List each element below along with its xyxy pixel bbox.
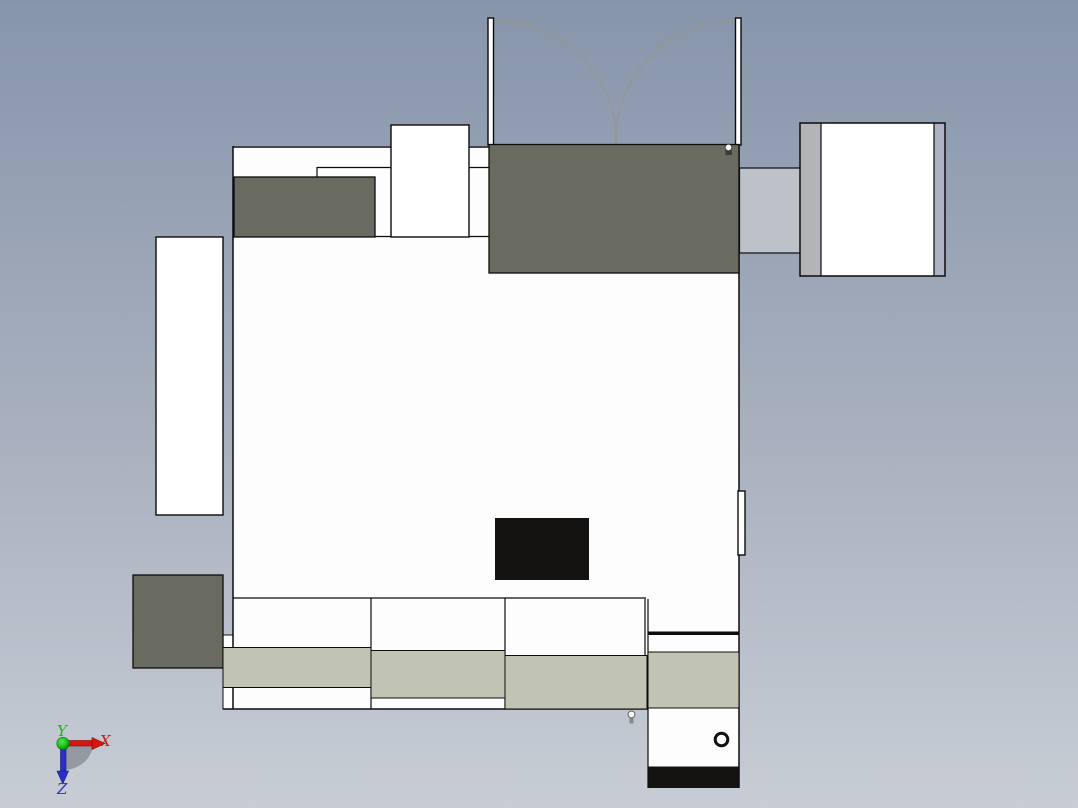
counter-top-section-2[interactable] [371,651,505,699]
right-wall-notch[interactable] [738,491,745,555]
door-swing-arc-right [615,20,734,145]
door-jamb-left[interactable] [488,18,494,145]
right-column-sill-line [648,632,739,636]
model-view: X Y Z [0,0,1078,808]
floor-pin-stem [630,718,634,724]
door-header-olive-panel[interactable] [489,145,739,274]
door-knob-icon[interactable] [725,144,732,155]
counter-top-section-3[interactable] [505,656,647,710]
counter-top-section-4[interactable] [648,652,739,708]
axis-triad[interactable]: X Y Z [56,722,112,798]
right-cabinet-body[interactable] [800,123,945,276]
door-swing-arcs [496,20,734,145]
tall-white-cabinet[interactable] [391,125,469,237]
door-knob-ball [725,144,732,151]
right-column-base-black[interactable] [648,767,739,789]
floor-pin-ball [628,711,635,718]
right-cabinet-strip-blue[interactable] [934,123,945,276]
left-white-column[interactable] [156,237,223,515]
pipe-ring-icon[interactable] [715,733,728,746]
right-cabinet-strip-gray[interactable] [800,123,821,276]
axis-x-label: X [99,732,112,750]
right-cabinet[interactable] [800,123,945,276]
axis-y-label: Y [57,722,69,740]
cad-viewport[interactable]: X Y Z [0,0,1078,808]
right-connector-duct[interactable] [740,168,801,253]
black-display-block[interactable] [495,518,589,580]
upper-left-olive-panel[interactable] [234,177,375,237]
counter-top-section-1[interactable] [223,648,371,688]
axis-z-shaft [61,747,67,773]
door-jamb-right[interactable] [736,18,742,145]
door-swing-arc-left [496,20,617,145]
axis-z-label: Z [56,780,68,798]
axis-x-shaft [66,741,92,747]
floor-pin-icon[interactable] [628,711,635,723]
lower-left-olive-block[interactable] [133,575,223,668]
